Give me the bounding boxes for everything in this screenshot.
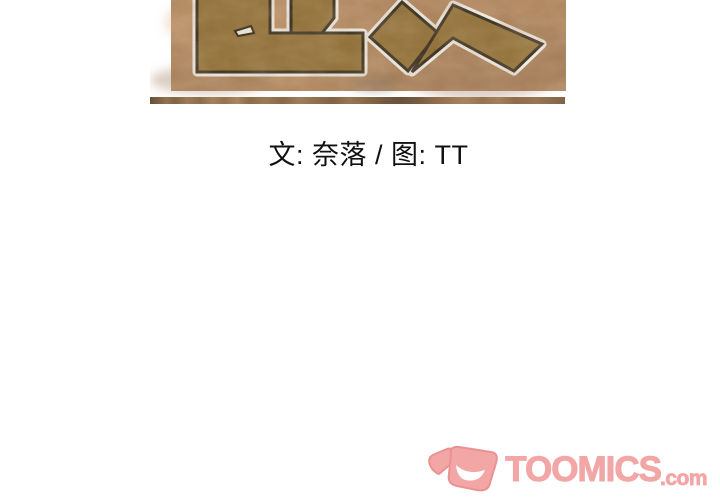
banner-noise-overlay	[171, 0, 566, 91]
toomics-watermark: TOOMICS .com	[427, 443, 707, 495]
title-banner-image	[150, 0, 566, 104]
credits-line: 文: 奈落 / 图: TT	[171, 133, 566, 172]
watermark-suffix-text: .com	[660, 468, 707, 489]
title-banner-svg	[150, 0, 566, 104]
page-root: { "page": { "background_color": "#ffffff…	[0, 0, 720, 500]
toomics-mascot-icon	[427, 443, 503, 495]
banner-bottom-strip	[150, 97, 565, 104]
watermark-brand-text: TOOMICS	[505, 452, 661, 487]
